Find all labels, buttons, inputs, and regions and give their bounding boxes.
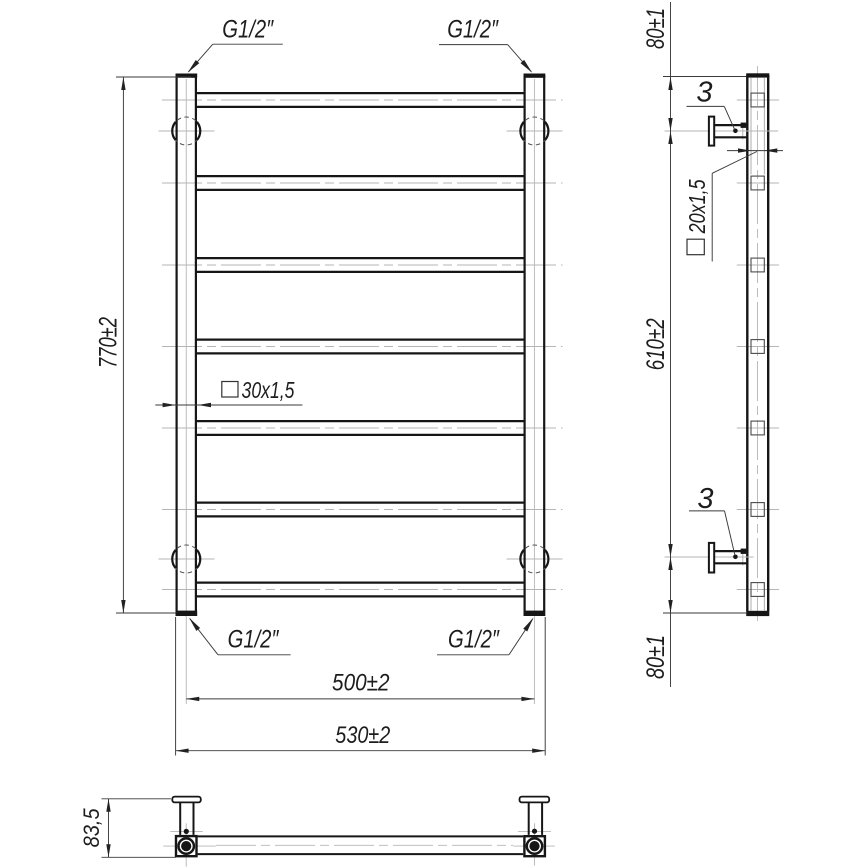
svg-text:30x1,5: 30x1,5 [242, 377, 296, 403]
svg-text:G1/2″: G1/2″ [447, 15, 499, 43]
svg-text:80±1: 80±1 [642, 8, 670, 49]
svg-text:500±2: 500±2 [332, 670, 390, 697]
svg-text:G1/2″: G1/2″ [228, 625, 280, 653]
svg-text:530±2: 530±2 [335, 722, 390, 749]
svg-text:3: 3 [697, 483, 713, 515]
svg-text:80±1: 80±1 [642, 635, 670, 679]
svg-text:610±2: 610±2 [642, 318, 670, 370]
svg-text:G1/2″: G1/2″ [222, 15, 274, 43]
svg-text:83,5: 83,5 [79, 808, 104, 847]
svg-text:770±2: 770±2 [94, 317, 122, 368]
svg-text:3: 3 [696, 77, 712, 109]
svg-text:20x1,5: 20x1,5 [684, 179, 710, 234]
svg-text:G1/2″: G1/2″ [448, 625, 500, 653]
